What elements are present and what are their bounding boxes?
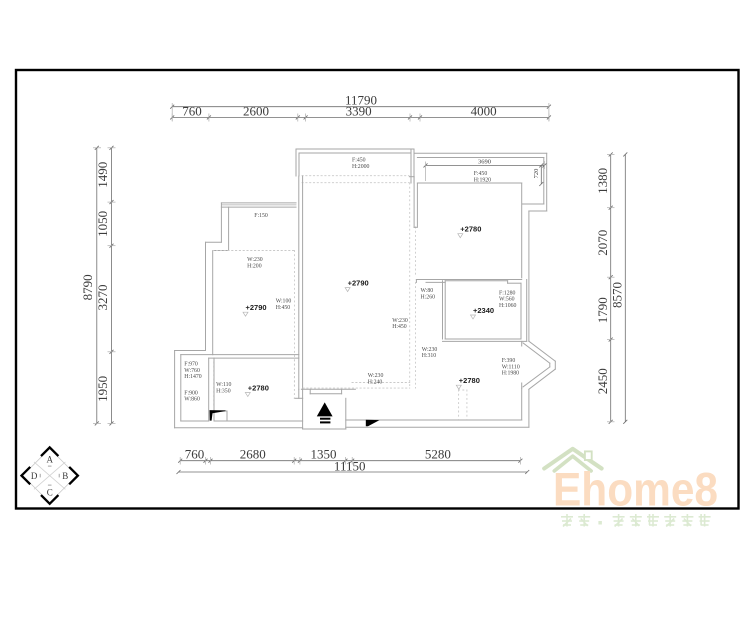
svg-text:F:450: F:450 [352, 158, 366, 164]
svg-text:3690: 3690 [478, 158, 491, 165]
svg-text:C: C [47, 488, 53, 498]
svg-text:2600: 2600 [243, 104, 269, 119]
svg-text:8790: 8790 [80, 274, 95, 300]
svg-text:1790: 1790 [595, 297, 610, 323]
svg-text:H:450: H:450 [276, 305, 291, 311]
svg-text:1050: 1050 [95, 211, 110, 237]
svg-text:+2780: +2780 [459, 376, 480, 385]
svg-text:5280: 5280 [425, 446, 451, 461]
svg-text:H:310: H:310 [422, 353, 437, 359]
svg-text:720: 720 [533, 169, 540, 179]
svg-text:F:450: F:450 [474, 171, 488, 177]
svg-text:H:1920: H:1920 [474, 177, 491, 183]
svg-text:3270: 3270 [95, 285, 110, 311]
svg-text:B: B [62, 471, 68, 481]
svg-text:A: A [46, 455, 53, 465]
svg-text:3390: 3390 [346, 104, 372, 119]
svg-text:H:1060: H:1060 [499, 303, 516, 309]
svg-text:W:110: W:110 [216, 382, 231, 388]
svg-text:W:230: W:230 [368, 373, 384, 379]
svg-text:+2340: +2340 [473, 306, 494, 315]
svg-text:W:1110: W:1110 [502, 364, 520, 370]
svg-text:1490: 1490 [95, 162, 110, 188]
svg-text:H:240: H:240 [368, 380, 383, 386]
svg-text:+2790: +2790 [246, 303, 267, 312]
svg-text:1380: 1380 [595, 168, 610, 194]
svg-text:W:860: W:860 [184, 397, 200, 403]
svg-text:Ehome8: Ehome8 [553, 463, 718, 516]
svg-text:W:230: W:230 [247, 257, 263, 263]
svg-text:2070: 2070 [595, 230, 610, 256]
svg-text:760: 760 [185, 446, 205, 461]
svg-text:F:390: F:390 [502, 358, 516, 364]
svg-text:1350: 1350 [311, 446, 337, 461]
svg-text:H:2000: H:2000 [352, 164, 369, 170]
svg-text:F:900: F:900 [184, 390, 198, 396]
svg-text:11150: 11150 [334, 459, 366, 474]
svg-text:H:450: H:450 [392, 324, 407, 330]
svg-text:W:100: W:100 [276, 299, 292, 305]
svg-text:760: 760 [182, 104, 202, 119]
svg-text:+2790: +2790 [348, 278, 369, 287]
svg-text:H:350: H:350 [216, 388, 231, 394]
svg-text:2680: 2680 [240, 446, 266, 461]
svg-text:2450: 2450 [595, 368, 610, 394]
svg-text:W:230: W:230 [392, 318, 408, 324]
svg-text:W:560: W:560 [499, 297, 515, 303]
svg-text:H:1470: H:1470 [184, 374, 201, 380]
svg-text:H:1980: H:1980 [502, 371, 519, 377]
svg-text:+2780: +2780 [460, 225, 481, 234]
svg-text:H:260: H:260 [421, 294, 436, 300]
svg-text:D: D [31, 471, 38, 481]
svg-text:W:760: W:760 [184, 368, 200, 374]
svg-text:+2780: +2780 [248, 383, 269, 392]
svg-text:W:80: W:80 [421, 288, 434, 294]
svg-text:H:200: H:200 [247, 263, 262, 269]
svg-text:F:150: F:150 [254, 213, 268, 219]
svg-text:F:1280: F:1280 [499, 290, 516, 296]
svg-text:8570: 8570 [609, 282, 624, 308]
svg-text:1950: 1950 [95, 376, 110, 402]
svg-text:W:230: W:230 [422, 347, 438, 353]
svg-text:4000: 4000 [471, 104, 497, 119]
svg-text:F:970: F:970 [184, 362, 198, 368]
